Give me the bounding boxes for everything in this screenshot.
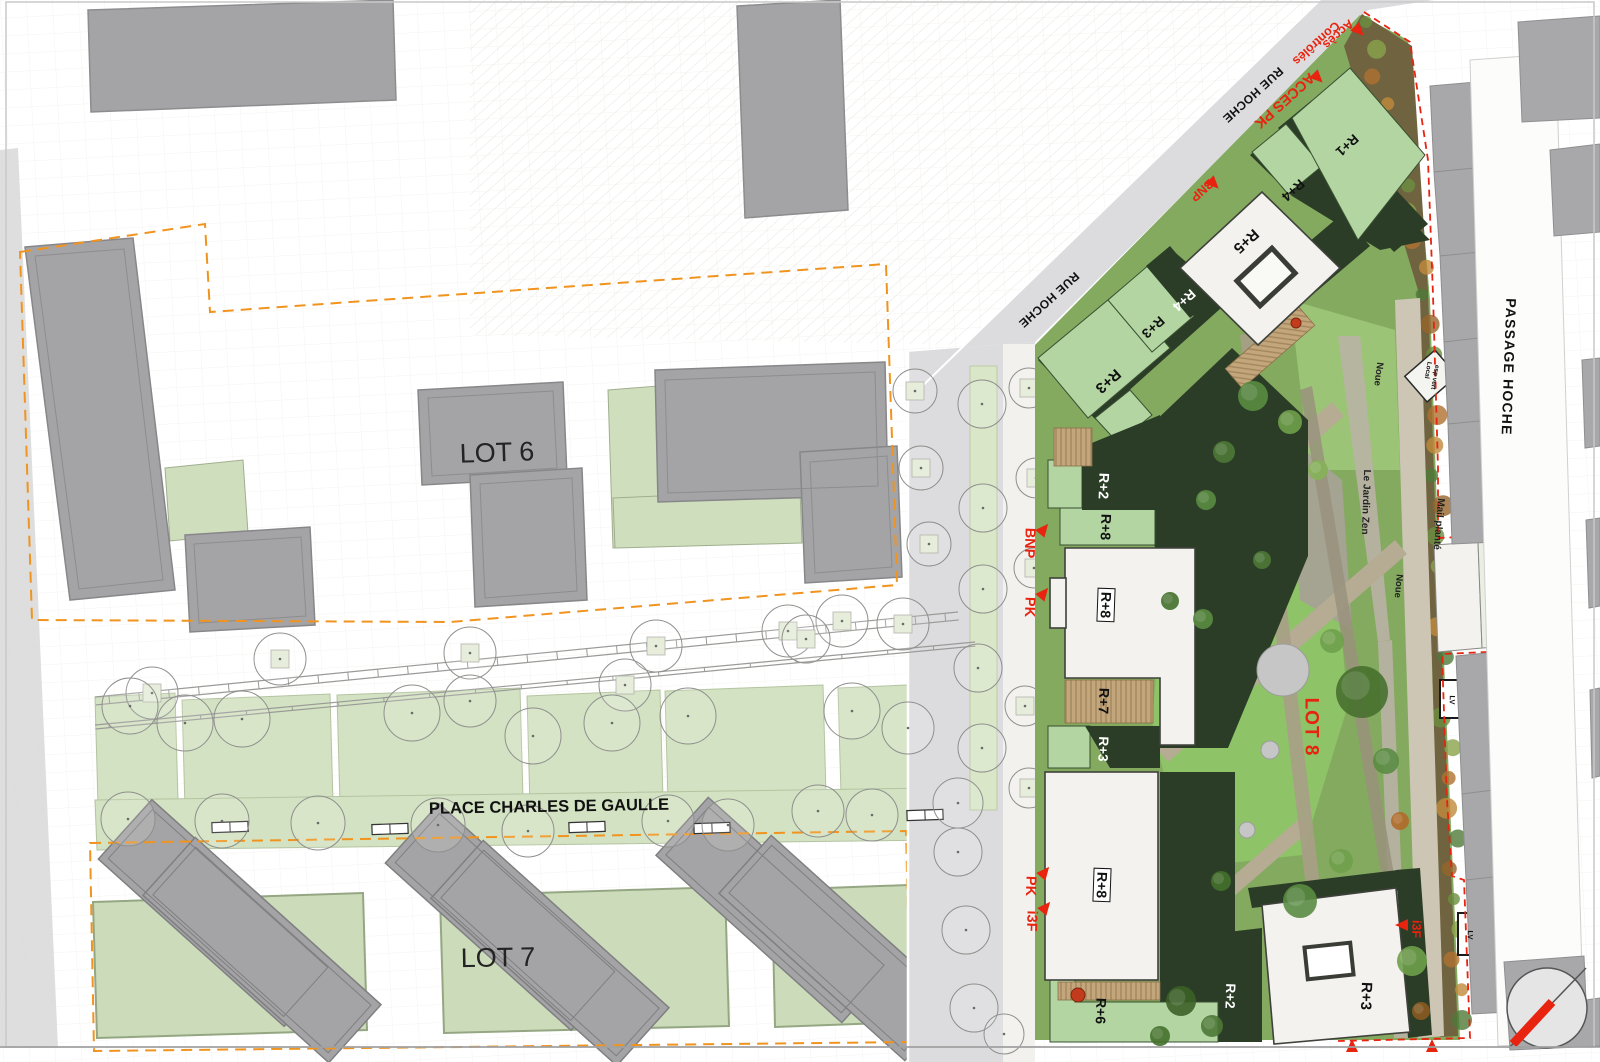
tree-icon (877, 598, 929, 650)
lawn-circle (1261, 741, 1279, 759)
garden-tree-icon (1308, 460, 1328, 480)
lot6-building (800, 446, 902, 583)
building-r8-north-wing (1050, 578, 1066, 628)
context-building (88, 0, 396, 112)
tree-icon (984, 1014, 1024, 1054)
garden-tree-icon (1150, 1026, 1170, 1046)
tree-icon (893, 369, 937, 413)
tree-icon (444, 675, 496, 727)
building-boundary-west (1434, 542, 1482, 652)
lawn-circle (1239, 822, 1255, 838)
tree-icon (959, 484, 1007, 532)
garden-tree-icon (1336, 666, 1388, 718)
garden-tree-icon (1373, 748, 1399, 774)
garden-tree-icon (1412, 1002, 1430, 1020)
north-arrow-icon (1507, 968, 1587, 1048)
garden-tree-icon (1253, 551, 1271, 569)
garden-tree-icon (1193, 609, 1213, 629)
flower-dot (1071, 988, 1085, 1002)
site-plan-drawing (0, 0, 1600, 1062)
garden-tree-icon (1320, 629, 1344, 653)
garden-tree-icon (1201, 1015, 1223, 1037)
lot6-green (165, 460, 248, 541)
tree-icon (505, 708, 561, 764)
wood-deck (1054, 428, 1092, 466)
tree-icon (846, 789, 898, 841)
context-building (1444, 338, 1482, 424)
tree-icon (411, 798, 465, 852)
garden-tree-icon (1397, 946, 1427, 976)
bench-icon (569, 821, 605, 832)
tree-icon (907, 522, 951, 566)
tree-icon (882, 702, 934, 754)
tree-icon (702, 799, 754, 851)
tree-icon (934, 828, 982, 876)
tree-icon (642, 795, 694, 847)
tree-icon (782, 615, 830, 663)
context-building (1590, 688, 1600, 778)
green-roof-r8 (1060, 508, 1155, 545)
tree-icon (254, 633, 306, 685)
strip-shrub (1444, 739, 1461, 756)
strip-shrub (1367, 40, 1386, 59)
garden-tree-icon (1161, 592, 1179, 610)
strip-shrub (1455, 983, 1468, 996)
dark-roof (1160, 772, 1235, 940)
tree-icon (157, 695, 213, 751)
green-roof-r3 (1048, 726, 1090, 768)
context-building (1518, 16, 1600, 122)
tree-icon (958, 724, 1006, 772)
tree-icon (502, 805, 554, 857)
garden-tree-icon (1166, 986, 1196, 1016)
tree-icon (444, 627, 496, 679)
strip-shrub (1426, 527, 1444, 545)
tree-icon (195, 794, 249, 848)
tree-icon (792, 785, 844, 837)
bench-icon (372, 823, 408, 834)
building-r8-south (1045, 772, 1158, 980)
wood-deck-r7 (1065, 680, 1153, 723)
garden-tree-icon (1211, 871, 1231, 891)
strip-shrub (1442, 861, 1457, 876)
lawn-circle (1257, 644, 1309, 696)
tree-icon (384, 685, 440, 741)
tree-icon (899, 446, 943, 490)
garden-tree-icon (1278, 410, 1302, 434)
tree-icon (954, 644, 1002, 692)
strip-shrub (1442, 771, 1456, 785)
tree-icon (933, 778, 983, 828)
context-building (1582, 358, 1600, 448)
lot6-building (470, 468, 587, 607)
strip-shrub (1360, 16, 1372, 28)
strip-shrub (1424, 469, 1438, 483)
tree-icon (824, 683, 880, 739)
garden-tree-icon (1329, 849, 1353, 873)
strip-shrub (1426, 437, 1443, 454)
courtyard-r3 (1304, 943, 1353, 980)
garden-tree-icon (1391, 812, 1409, 830)
flower-dot (1291, 318, 1301, 328)
tree-icon (584, 695, 640, 751)
context-building (1586, 518, 1600, 608)
tree-icon (101, 792, 155, 846)
garden-tree-icon (1196, 490, 1216, 510)
tree-icon (958, 380, 1006, 428)
strip-shrub (1421, 315, 1440, 334)
garden-tree-icon (1283, 884, 1317, 918)
tree-icon (214, 691, 270, 747)
strip-shrub (1448, 893, 1460, 905)
tree-icon (959, 565, 1007, 613)
context-building (1550, 144, 1600, 236)
green-roof (1048, 460, 1082, 508)
context-building (737, 0, 848, 218)
tree-icon (660, 688, 716, 744)
strip-shrub (1364, 69, 1380, 85)
tree-icon (102, 678, 158, 734)
tree-icon (291, 796, 345, 850)
site-plan-stage: LOT 6LOT 7LOT 8PLACE CHARLES DE GAULLERU… (0, 0, 1600, 1062)
tree-icon (942, 906, 990, 954)
garden-tree-icon (1238, 381, 1268, 411)
garden-tree-icon (1213, 441, 1235, 463)
